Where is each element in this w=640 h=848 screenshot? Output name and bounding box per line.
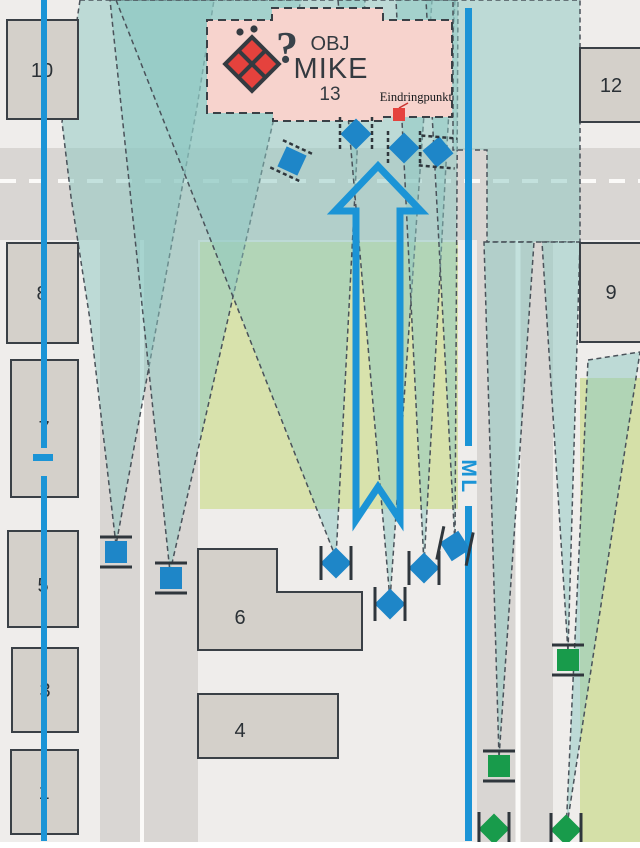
route-line-left-lower: [41, 476, 47, 841]
building-4-label: 4: [234, 720, 245, 742]
building-4: [198, 694, 338, 758]
objective-number: 13: [319, 84, 340, 105]
objective-prefix: OBJ: [311, 33, 350, 55]
marker-dot-icon: [236, 28, 243, 35]
route-line-left-upper: [41, 0, 47, 448]
entry-point-marker-icon: [393, 108, 405, 121]
objective-building: ? OBJ MIKE 13 Eindringpunkt: [207, 8, 453, 121]
tactical-map: ? OBJ MIKE 13 Eindringpunkt 10 12 8 9 7 …: [0, 0, 640, 848]
route-line-left-break-bar: [33, 454, 53, 461]
objective-name: MIKE: [294, 53, 369, 85]
building-12-label: 12: [600, 75, 622, 97]
building-9-label: 9: [605, 282, 616, 304]
phase-line-ml-label: ML: [457, 459, 480, 494]
bottom-margin: [0, 842, 640, 848]
phase-line-ml-upper: [465, 8, 472, 446]
entry-point-label: Eindringpunkt: [380, 90, 453, 104]
marker-dot-icon: [250, 25, 257, 32]
building-6-label: 6: [234, 607, 245, 629]
